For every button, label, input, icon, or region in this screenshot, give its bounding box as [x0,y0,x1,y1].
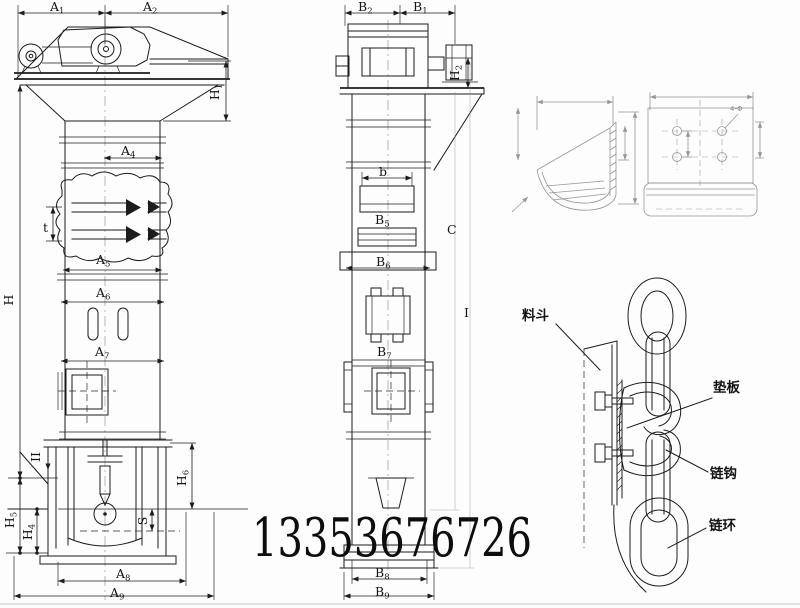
dim-label-a8: A8 [115,566,130,584]
inspection-door-front [58,361,116,423]
dim-label-h6: H6 [174,470,192,486]
coupling [428,57,444,70]
bucket-outline [376,478,406,508]
dim-label-h2: H2 [447,65,465,81]
dim-label-h: H [1,294,16,305]
watermark-phone-number: 13353676726 [252,508,532,569]
chain-hook-shape [620,382,681,475]
callout-bucket: 料斗 [522,307,550,324]
bolt-slot-left [88,308,98,340]
callout-chain-hook: 链钩 [710,465,737,482]
head-section-front [14,27,230,121]
dim-label-a5: A5 [95,252,110,270]
callout-pad-plate: 垫板 [713,379,741,396]
callout-chain-link: 链环 [709,517,737,534]
bucket-mounting-detail: 4-Φ [644,92,764,216]
bolt-hole-note: 4-Φ [730,105,743,113]
dim-label-a1: A1 [49,0,64,17]
dim-label-b7: B7 [377,344,392,362]
head-section-side [336,24,484,170]
bucket-profile-detail [512,96,639,212]
dim-label-t: t [43,220,48,235]
dim-label-b5: B5 [375,212,390,230]
bolt-slot-right [118,308,128,340]
dim-label-a2: A2 [142,0,157,17]
dim-label-b1: B1 [413,0,428,17]
dim-label-h1: H1 [207,84,225,100]
chain-assembly-detail [556,278,712,592]
platform-brace [434,94,482,170]
dim-label-c: C [447,222,457,237]
dim-label-b6: B6 [376,254,391,272]
dim-label-b9: B9 [375,584,390,602]
section-mark-label: II [28,452,43,462]
chain-links [628,278,688,586]
dim-label-b2: B2 [358,0,373,17]
inspection-door-side-lower [344,360,433,422]
elevator-drawing-canvas: 4-Φ [0,0,800,608]
dim-label-a4: A4 [120,143,135,161]
inspection-door-side-upper [358,186,416,246]
dim-label-a6: A6 [95,285,110,303]
dim-label-h5: H5 [2,512,20,528]
dim-label-a9: A9 [109,585,124,603]
dim-label-a7: A7 [94,344,109,362]
scanned-technical-drawing: 4-Φ [0,0,800,608]
chain-detail-callouts: 料斗 垫板 链钩 链环 [522,307,741,534]
mounting-bolts [595,392,633,462]
drive-unit [19,27,150,73]
dim-label-i: I [464,305,469,320]
dim-label-h4: H4 [20,524,38,540]
dim-label-b: b [379,164,387,179]
dim-label-s: S [135,517,150,526]
